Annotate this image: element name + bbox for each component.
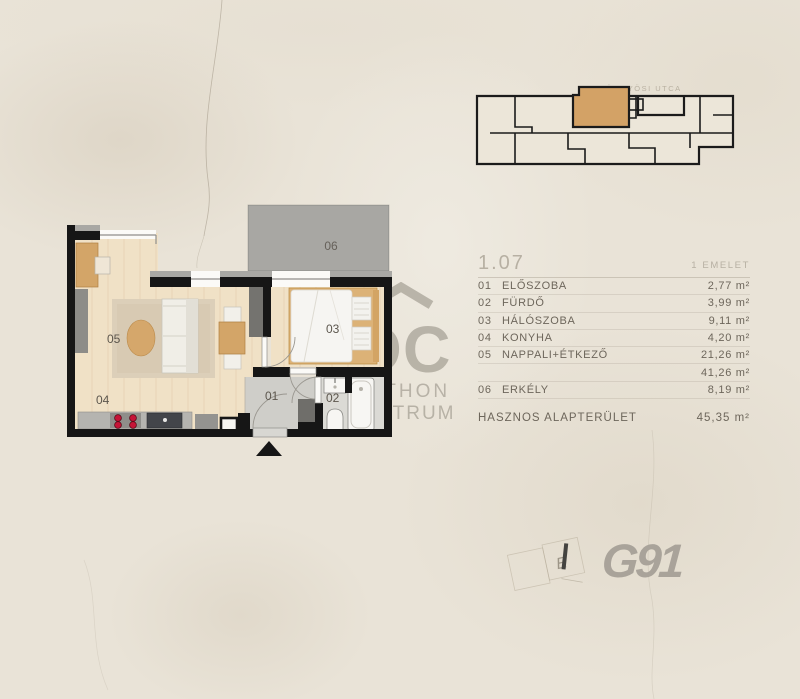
area-legend: 1.07 1 EMELET 01ELŐSZOBA 2,77 m² 02FÜRDŐ…: [478, 252, 750, 426]
room-area: 3,99 m²: [708, 297, 750, 309]
room-number: 03: [478, 315, 502, 327]
counter-end: [195, 414, 218, 429]
bed-duvet: [291, 290, 352, 362]
room-number: 05: [478, 349, 502, 361]
legend-row: 01ELŐSZOBA 2,77 m²: [478, 278, 750, 295]
washer: [298, 399, 315, 422]
room-area: 4,20 m²: [708, 332, 750, 344]
g91-logo: G91: [600, 533, 684, 588]
room-name: FÜRDŐ: [502, 297, 545, 309]
room-area: 9,11 m²: [709, 315, 750, 327]
room-name: ELŐSZOBA: [502, 280, 567, 292]
subtotal-area: 41,26 m²: [701, 367, 750, 379]
apartment-floor-plan: 06: [55, 195, 400, 465]
legend-subtotal-row: 41,26 m²: [478, 364, 750, 381]
room-area: 21,26 m²: [701, 349, 750, 361]
total-label: HASZNOS ALAPTERÜLET: [478, 412, 637, 424]
room-balcony: 06: [248, 205, 389, 271]
coffee-table: [127, 320, 155, 356]
legend-total-row: HASZNOS ALAPTERÜLET 45,35 m²: [478, 409, 750, 426]
highlighted-unit: [573, 87, 629, 127]
architect-stamp: E: [498, 528, 598, 598]
floor-label: 1 EMELET: [691, 260, 750, 274]
room-number: 02: [478, 297, 502, 309]
building-key-plan: GYÖNGYÖSI UTCA: [470, 78, 740, 173]
bathroom-door-leaf: [315, 377, 321, 403]
room-number: 06: [478, 384, 502, 396]
entrance-arrow-icon: [256, 441, 282, 456]
sofa: [162, 299, 198, 373]
unit-number: 1.07: [478, 252, 525, 274]
legend-row: 02FÜRDŐ 3,99 m²: [478, 295, 750, 312]
legend-row: 05NAPPALI+ÉTKEZŐ 21,26 m²: [478, 347, 750, 364]
room-label-03: 03: [326, 322, 340, 336]
dining-table: [219, 322, 245, 354]
toilet: [327, 409, 343, 431]
total-area: 45,35 m²: [697, 412, 750, 424]
room-name: ERKÉLY: [502, 384, 549, 396]
room-area: 8,19 m²: [708, 384, 750, 396]
wardrobe: [75, 289, 88, 353]
room-name: NAPPALI+ÉTKEZŐ: [502, 349, 608, 361]
room-number: 01: [478, 280, 502, 292]
room-label-06: 06: [324, 239, 338, 253]
stamp-letter: E: [555, 554, 569, 573]
living-door-leaf: [262, 337, 267, 367]
room-label-01: 01: [265, 389, 279, 403]
room-name: KONYHA: [502, 332, 553, 344]
storage-block: [249, 287, 263, 337]
bedroom-door-leaf: [290, 368, 316, 374]
legend-header: 1.07 1 EMELET: [478, 252, 750, 278]
room-number: 04: [478, 332, 502, 344]
legend-row: 03HÁLÓSZOBA 9,11 m²: [478, 313, 750, 330]
entrance-door-leaf: [253, 428, 287, 437]
room-name: HÁLÓSZOBA: [502, 315, 576, 327]
dining-chair: [224, 354, 241, 369]
legend-row: 04KONYHA 4,20 m²: [478, 330, 750, 347]
legend-row-balcony: 06ERKÉLY 8,19 m²: [478, 382, 750, 399]
desk-chair: [95, 257, 110, 274]
room-label-05: 05: [107, 332, 121, 346]
room-label-04: 04: [96, 393, 110, 407]
room-label-02: 02: [326, 391, 340, 405]
floorplan-sheet: { "site_plan": { "street_label": "GYÖNGY…: [0, 0, 800, 699]
room-area: 2,77 m²: [708, 280, 750, 292]
dining-chair: [224, 307, 241, 322]
